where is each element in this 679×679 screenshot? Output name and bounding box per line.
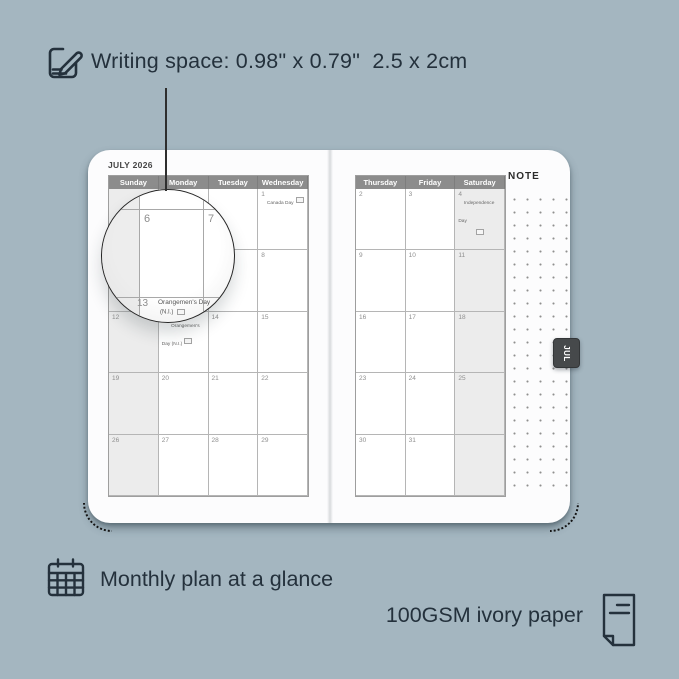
calendar-cell: 22: [258, 373, 308, 434]
magnified-day: 7: [208, 213, 214, 225]
weekday-header: Wednesday: [258, 176, 308, 189]
calendar-cell: 3: [406, 189, 456, 250]
calendar-cell: [455, 435, 505, 496]
holiday-label: Independence Day: [458, 201, 494, 224]
weekday-header: Saturday: [455, 176, 505, 189]
calendar-cell: 24: [406, 373, 456, 434]
calendar-cell: 4Independence Day: [455, 189, 505, 250]
calendar-cell: 23: [356, 373, 406, 434]
calendar-cell: 10: [406, 250, 456, 311]
weekday-header: Sunday: [109, 176, 159, 189]
calendar-cell: 27: [159, 435, 209, 496]
calendar-cell: 20: [159, 373, 209, 434]
day-number: 4: [458, 191, 462, 198]
day-number: 26: [112, 437, 119, 444]
holiday-label: Orangemen's Day (N.I.): [162, 324, 200, 347]
day-number: 20: [162, 375, 169, 382]
day-number: 28: [212, 437, 219, 444]
notebook-spine: [327, 150, 333, 523]
day-number: 11: [458, 252, 465, 259]
magnified-holiday-label: Orangemen's Day: [158, 299, 210, 306]
calendar-cell: 11: [455, 250, 505, 311]
magnifier-circle: 6 7 13 Orangemen's Day (N.I.): [101, 189, 235, 323]
month-tab-label: JUL: [562, 345, 571, 362]
day-number: 30: [359, 437, 366, 444]
month-title: JULY 2026: [108, 160, 153, 170]
paper-quality-caption: 100GSM ivory paper: [386, 603, 583, 628]
day-number: 3: [409, 191, 413, 198]
day-number: 10: [409, 252, 416, 259]
day-number: 8: [261, 252, 265, 259]
day-number: 9: [359, 252, 363, 259]
calendar-cell: 19: [109, 373, 159, 434]
flag-icon: [476, 229, 484, 235]
day-number: 16: [359, 314, 366, 321]
monthly-plan-caption: Monthly plan at a glance: [100, 567, 333, 592]
calendar-cell: 8: [258, 250, 308, 311]
calendar-cell: 21: [209, 373, 259, 434]
product-infographic: Writing space: 0.98" x 0.79" 2.5 x 2cm J…: [0, 0, 679, 679]
day-number: 17: [409, 314, 416, 321]
holiday-label: Canada Day: [267, 201, 294, 206]
weekday-header: Friday: [406, 176, 456, 189]
day-number: 2: [359, 191, 363, 198]
pencil-note-icon: [40, 36, 88, 84]
calendar-cell: 14: [209, 312, 259, 373]
day-number: 23: [359, 375, 366, 382]
flag-icon: [184, 338, 192, 344]
month-tab: JUL: [553, 338, 580, 368]
calendar-cell: 30: [356, 435, 406, 496]
day-number: 24: [409, 375, 416, 382]
weekday-header: Thursday: [356, 176, 406, 189]
day-number: 27: [162, 437, 169, 444]
magnified-grid-line: [102, 209, 234, 210]
calendar-cell: 2: [356, 189, 406, 250]
calendar-cell: 15: [258, 312, 308, 373]
day-number: 14: [212, 314, 219, 321]
calendar-cell: 31: [406, 435, 456, 496]
magnified-grid-line: [102, 297, 234, 298]
flag-icon: [296, 197, 304, 203]
calendar-cell: 9: [356, 250, 406, 311]
day-number: 19: [112, 375, 119, 382]
calendar-cell: 1Canada Day: [258, 189, 308, 250]
calendar-cell: 17: [406, 312, 456, 373]
day-number: 25: [458, 375, 465, 382]
weekday-header: Tuesday: [209, 176, 259, 189]
calendar-cell: 16: [356, 312, 406, 373]
day-number: 15: [261, 314, 268, 321]
magnified-holiday-region: (N.I.): [160, 309, 185, 316]
leader-line: [165, 88, 167, 191]
note-label: NOTE: [508, 171, 540, 182]
day-number: 31: [409, 437, 416, 444]
calendar-grid-icon: [42, 554, 90, 602]
day-number: 21: [212, 375, 219, 382]
writing-space-caption: Writing space: 0.98" x 0.79" 2.5 x 2cm: [91, 49, 467, 74]
calendar-cell: 28: [209, 435, 259, 496]
day-number: 29: [261, 437, 268, 444]
calendar-cell: 29: [258, 435, 308, 496]
magnified-day: 13: [137, 298, 148, 309]
calendar-right-page: ThursdayFridaySaturday234Independence Da…: [355, 175, 506, 497]
paper-sheet-icon: [597, 592, 641, 648]
magnified-day: 6: [144, 213, 150, 225]
day-number: 22: [261, 375, 268, 382]
day-number: 1: [261, 191, 265, 198]
calendar-cell: 25: [455, 373, 505, 434]
flag-icon: [177, 309, 185, 315]
calendar-cell: 18: [455, 312, 505, 373]
day-number: 18: [458, 314, 465, 321]
